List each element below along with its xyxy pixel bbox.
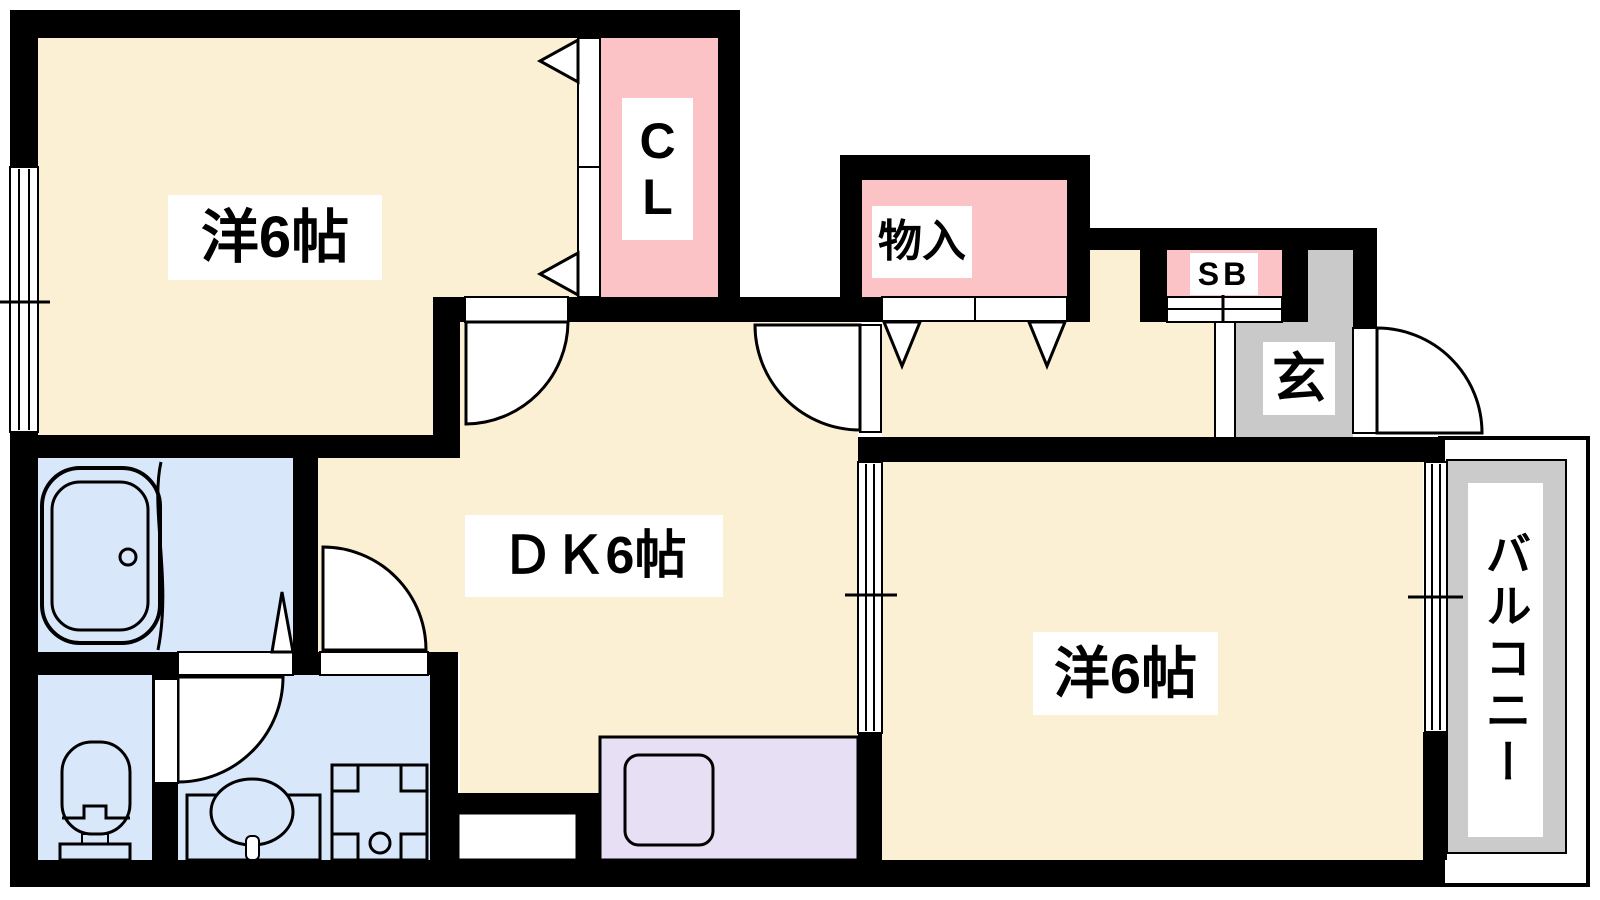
wall-segment: [840, 155, 1090, 180]
wall-segment: [38, 652, 178, 675]
wall-segment: [428, 652, 458, 675]
wall-segment: [1140, 250, 1167, 322]
entrance-door-opening: [1353, 328, 1377, 433]
wall-segment: [10, 860, 1445, 887]
storage-label: 物入: [872, 206, 972, 278]
wall-segment: [718, 10, 740, 322]
dining-kitchen-label: ＤＫ6帖: [465, 515, 723, 597]
entry-label: 玄: [1263, 342, 1335, 415]
wall-segment: [1090, 228, 1377, 250]
wall-segment: [293, 458, 318, 652]
hallway-nook-floor: [1090, 250, 1140, 324]
hall-dk-door-opening: [860, 325, 881, 432]
entrance-door-swing: [1377, 328, 1482, 433]
wall-segment: [10, 10, 740, 38]
entry-step: [1215, 322, 1235, 438]
wall-segment: [1423, 732, 1447, 860]
wall-segment: [840, 155, 862, 322]
floor-plan: 洋6帖 CL 物入 SB 玄 ＤＫ6帖 洋6帖 バルコニー: [0, 0, 1600, 900]
washroom-inner-door-leaf: [154, 679, 178, 783]
wall-segment: [858, 437, 1445, 462]
toilet-room-floor: [38, 675, 152, 860]
bathroom-door-opening: [178, 652, 293, 675]
bedroom1-door-opening: [465, 297, 568, 322]
kitchen-counter-icon: [600, 737, 858, 860]
floor-plan-drawing: [0, 0, 1600, 900]
bedroom-top-left-label: 洋6帖: [168, 195, 382, 280]
shoe-box-label: SB: [1190, 253, 1258, 295]
wall-segment: [1353, 250, 1377, 328]
wall-segment: [1282, 250, 1308, 322]
wall-segment: [858, 733, 882, 860]
wall-segment: [1067, 155, 1090, 322]
service-opening: [458, 813, 577, 860]
wall-segment: [293, 652, 320, 675]
balcony-label: バルコニー: [1468, 483, 1543, 837]
washroom-door-opening: [320, 652, 428, 675]
closet-cl-label: CL: [622, 98, 693, 240]
bathroom-floor: [38, 458, 293, 652]
bedroom-right-label: 洋6帖: [1033, 632, 1218, 715]
wall-segment: [10, 435, 460, 458]
